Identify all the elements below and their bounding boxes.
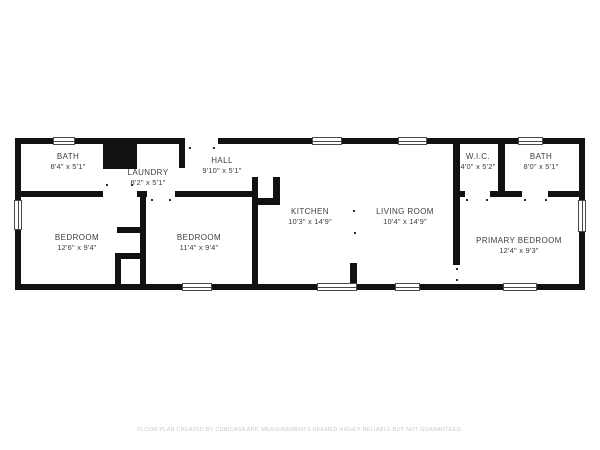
door-tick: [189, 147, 191, 149]
window: [503, 283, 537, 291]
exterior-wall-bottom: [15, 284, 585, 290]
door-tick: [213, 147, 215, 149]
window: [182, 283, 212, 291]
room-name: BATH: [28, 152, 108, 162]
door-tick: [456, 268, 458, 270]
room-label-kitchen: KITCHEN 10'3" x 14'9": [268, 207, 352, 227]
room-label-primary-bedroom: PRIMARY BEDROOM 12'4" x 9'3": [459, 236, 579, 256]
room-name: BEDROOM: [157, 233, 241, 243]
door-tick: [466, 199, 468, 201]
room-dimensions: 9'10" x 5'1": [182, 166, 262, 176]
exterior-wall-top-left: [15, 138, 185, 144]
window: [395, 283, 420, 291]
hall-kitchen-wall: [252, 177, 258, 284]
window: [578, 200, 586, 232]
door-tick: [524, 199, 526, 201]
room-label-bedroom-2: BEDROOM 11'4" x 9'4": [157, 233, 241, 253]
room-label-laundry: LAUNDRY 8'2" x 5'1": [106, 168, 190, 188]
door-tick: [545, 199, 547, 201]
window: [14, 200, 22, 230]
room-dimensions: 8'4" x 5'1": [28, 162, 108, 172]
kitchen-living-stub: [350, 263, 357, 284]
room-label-living-room: LIVING ROOM 10'4" x 14'9": [363, 207, 447, 227]
room-label-hall: HALL 9'10" x 5'1": [182, 156, 262, 176]
window: [53, 137, 75, 145]
door-tick: [354, 232, 356, 234]
room-name: PRIMARY BEDROOM: [459, 236, 579, 246]
closet-stub-wall: [115, 253, 121, 284]
disclaimer-text: FLOOR PLAN CREATED BY CUBICASA APP. MEAS…: [0, 427, 600, 433]
room-dimensions: 12'4" x 9'3": [459, 246, 579, 256]
door-tick: [151, 199, 153, 201]
window: [518, 137, 543, 145]
door-tick: [353, 210, 355, 212]
interior-wall: [15, 191, 103, 197]
room-name: BEDROOM: [35, 233, 119, 243]
bedroom-divider-wall: [140, 191, 146, 284]
window: [398, 137, 427, 145]
door-tick: [486, 199, 488, 201]
window: [312, 137, 342, 145]
room-dimensions: 12'6" x 9'4": [35, 243, 119, 253]
room-dimensions: 10'3" x 14'9": [268, 217, 352, 227]
closet-stub-wall: [117, 227, 140, 233]
room-label-bedroom-1: BEDROOM 12'6" x 9'4": [35, 233, 119, 253]
room-label-bath-2: BATH 8'0" x 5'1": [503, 152, 579, 172]
door-tick: [169, 199, 171, 201]
interior-wall: [175, 191, 253, 197]
interior-wall: [548, 191, 585, 197]
room-dimensions: 8'0" x 5'1": [503, 162, 579, 172]
closet-nook-wall: [252, 198, 280, 205]
window: [317, 283, 357, 291]
room-name: LIVING ROOM: [363, 207, 447, 217]
room-name: LAUNDRY: [106, 168, 190, 178]
room-label-bath-1: BATH 8'4" x 5'1": [28, 152, 108, 172]
interior-wall: [490, 191, 522, 197]
room-dimensions: 10'4" x 14'9": [363, 217, 447, 227]
utility-block: [103, 138, 137, 169]
room-name: BATH: [503, 152, 579, 162]
room-name: KITCHEN: [268, 207, 352, 217]
floor-plan: BATH 8'4" x 5'1" LAUNDRY 8'2" x 5'1" HAL…: [0, 0, 600, 450]
door-tick: [456, 279, 458, 281]
room-name: HALL: [182, 156, 262, 166]
room-dimensions: 11'4" x 9'4": [157, 243, 241, 253]
room-dimensions: 8'2" x 5'1": [106, 178, 190, 188]
